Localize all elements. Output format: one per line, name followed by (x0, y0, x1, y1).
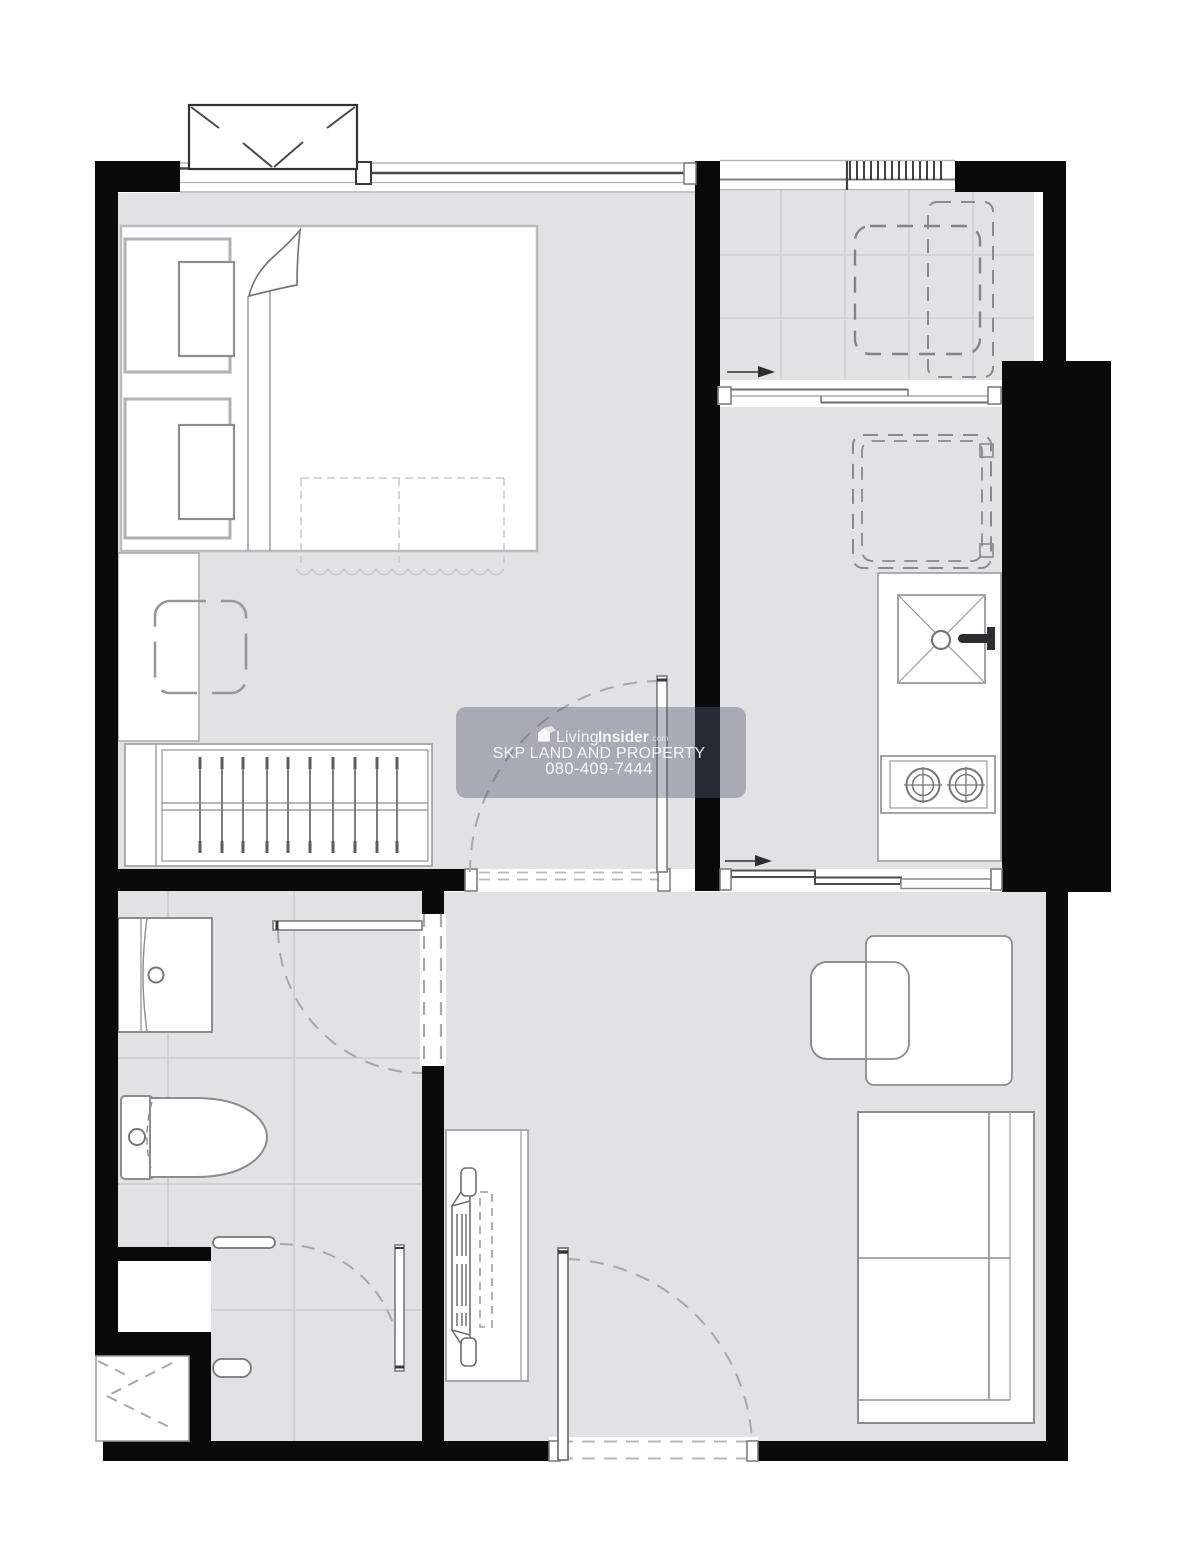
svg-text:080-409-7444: 080-409-7444 (545, 760, 653, 778)
svg-text:Insider: Insider (598, 729, 649, 746)
svg-text:Living: Living (556, 729, 599, 746)
svg-text:.com: .com (650, 733, 668, 743)
